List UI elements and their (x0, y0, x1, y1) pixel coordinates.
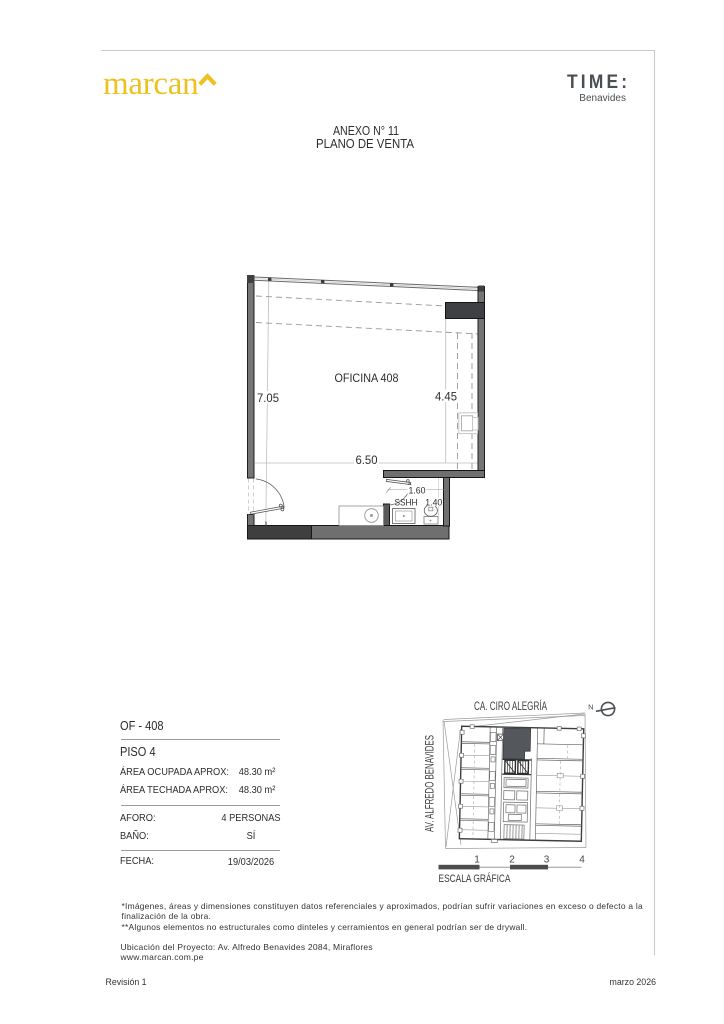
svg-text:6.50: 6.50 (356, 453, 378, 467)
svg-text:SSHH: SSHH (395, 498, 418, 509)
svg-text:CA. CIRO ALEGRÍA: CA. CIRO ALEGRÍA (474, 698, 547, 713)
svg-text:1.40: 1.40 (425, 498, 442, 509)
svg-text:4: 4 (579, 855, 585, 866)
svg-text:AV. ALFREDO BENAVIDES: AV. ALFREDO BENAVIDES (423, 735, 437, 832)
svg-text:1.60: 1.60 (409, 486, 426, 497)
svg-text:4.45: 4.45 (435, 389, 457, 403)
svg-text:7.05: 7.05 (257, 391, 279, 405)
svg-text:1: 1 (474, 855, 480, 866)
svg-text:N: N (588, 703, 593, 712)
svg-text:2: 2 (509, 855, 515, 866)
svg-text:OFICINA 408: OFICINA 408 (335, 371, 399, 385)
svg-text:ESCALA GRÁFICA: ESCALA GRÁFICA (439, 872, 511, 885)
svg-text:3: 3 (544, 855, 550, 866)
